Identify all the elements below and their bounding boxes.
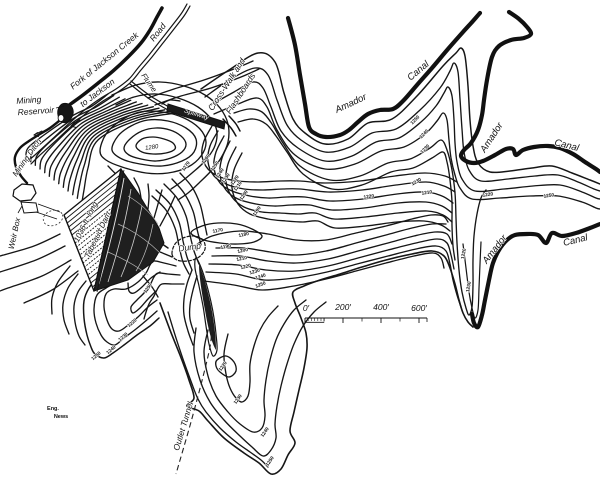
svg-text:Mining: Mining xyxy=(16,94,42,106)
svg-text:600′: 600′ xyxy=(411,303,427,313)
svg-text:400′: 400′ xyxy=(373,302,389,312)
svg-text:Eng.: Eng. xyxy=(47,406,59,412)
svg-text:News: News xyxy=(54,414,68,420)
svg-text:200′: 200′ xyxy=(334,302,351,312)
svg-text:0′: 0′ xyxy=(303,303,310,313)
